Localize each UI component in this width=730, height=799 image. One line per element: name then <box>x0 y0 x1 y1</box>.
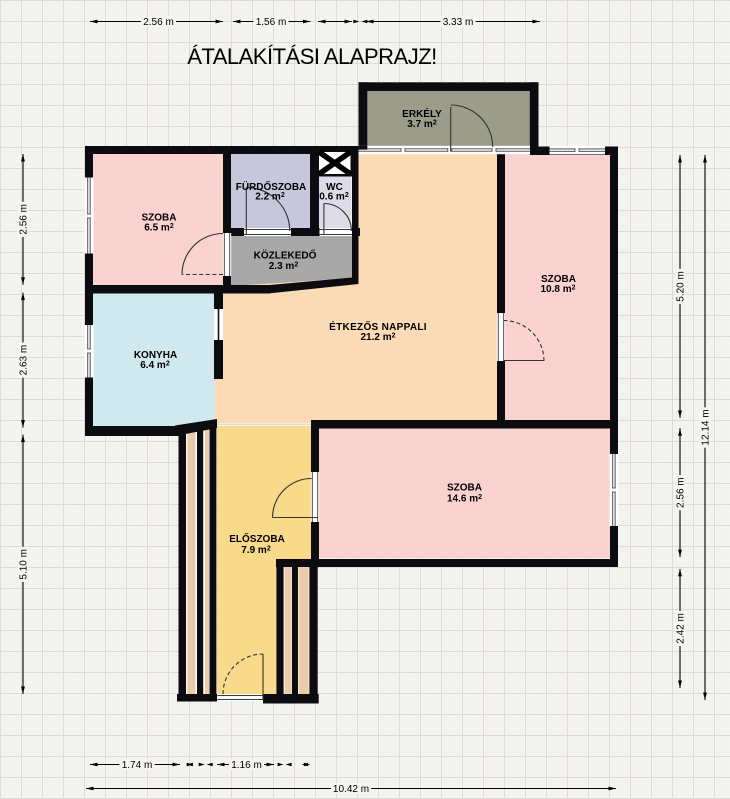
svg-text:1.56 m: 1.56 m <box>256 17 287 28</box>
svg-text:5.20 m: 5.20 m <box>676 271 687 302</box>
svg-text:5.10 m: 5.10 m <box>19 549 30 580</box>
svg-text:0.6 m2: 0.6 m2 <box>319 192 349 203</box>
svg-text:2.63 m: 2.63 m <box>19 345 30 376</box>
svg-text:6.4 m2: 6.4 m2 <box>140 360 170 371</box>
svg-text:10.8 m2: 10.8 m2 <box>540 284 575 295</box>
svg-text:10.42 m: 10.42 m <box>333 784 369 795</box>
svg-text:ÁTALAKÍTÁSI ALAPRAJZ!: ÁTALAKÍTÁSI ALAPRAJZ! <box>187 44 437 69</box>
svg-text:1.16 m: 1.16 m <box>231 760 262 771</box>
svg-text:2.56 m: 2.56 m <box>19 204 30 235</box>
svg-text:2.56 m: 2.56 m <box>676 477 687 508</box>
svg-text:1.74 m: 1.74 m <box>122 760 153 771</box>
svg-text:2.56 m: 2.56 m <box>143 17 174 28</box>
svg-text:14.6 m2: 14.6 m2 <box>447 494 482 505</box>
svg-text:ELŐSZOBA: ELŐSZOBA <box>229 532 285 545</box>
svg-text:SZOBA: SZOBA <box>447 483 482 494</box>
svg-text:7.9 m2: 7.9 m2 <box>241 545 271 556</box>
svg-text:12.14 m: 12.14 m <box>701 409 712 445</box>
svg-text:21.2 m2: 21.2 m2 <box>360 332 395 343</box>
svg-text:3.7 m2: 3.7 m2 <box>407 119 437 130</box>
svg-text:3.33 m: 3.33 m <box>443 17 474 28</box>
svg-text:KÖZLEKEDŐ: KÖZLEKEDŐ <box>254 249 317 262</box>
svg-text:6.5 m2: 6.5 m2 <box>144 223 174 234</box>
svg-text:2.42 m: 2.42 m <box>676 613 687 644</box>
svg-text:2.2 m2: 2.2 m2 <box>255 192 285 203</box>
svg-text:2.3 m2: 2.3 m2 <box>269 261 299 272</box>
